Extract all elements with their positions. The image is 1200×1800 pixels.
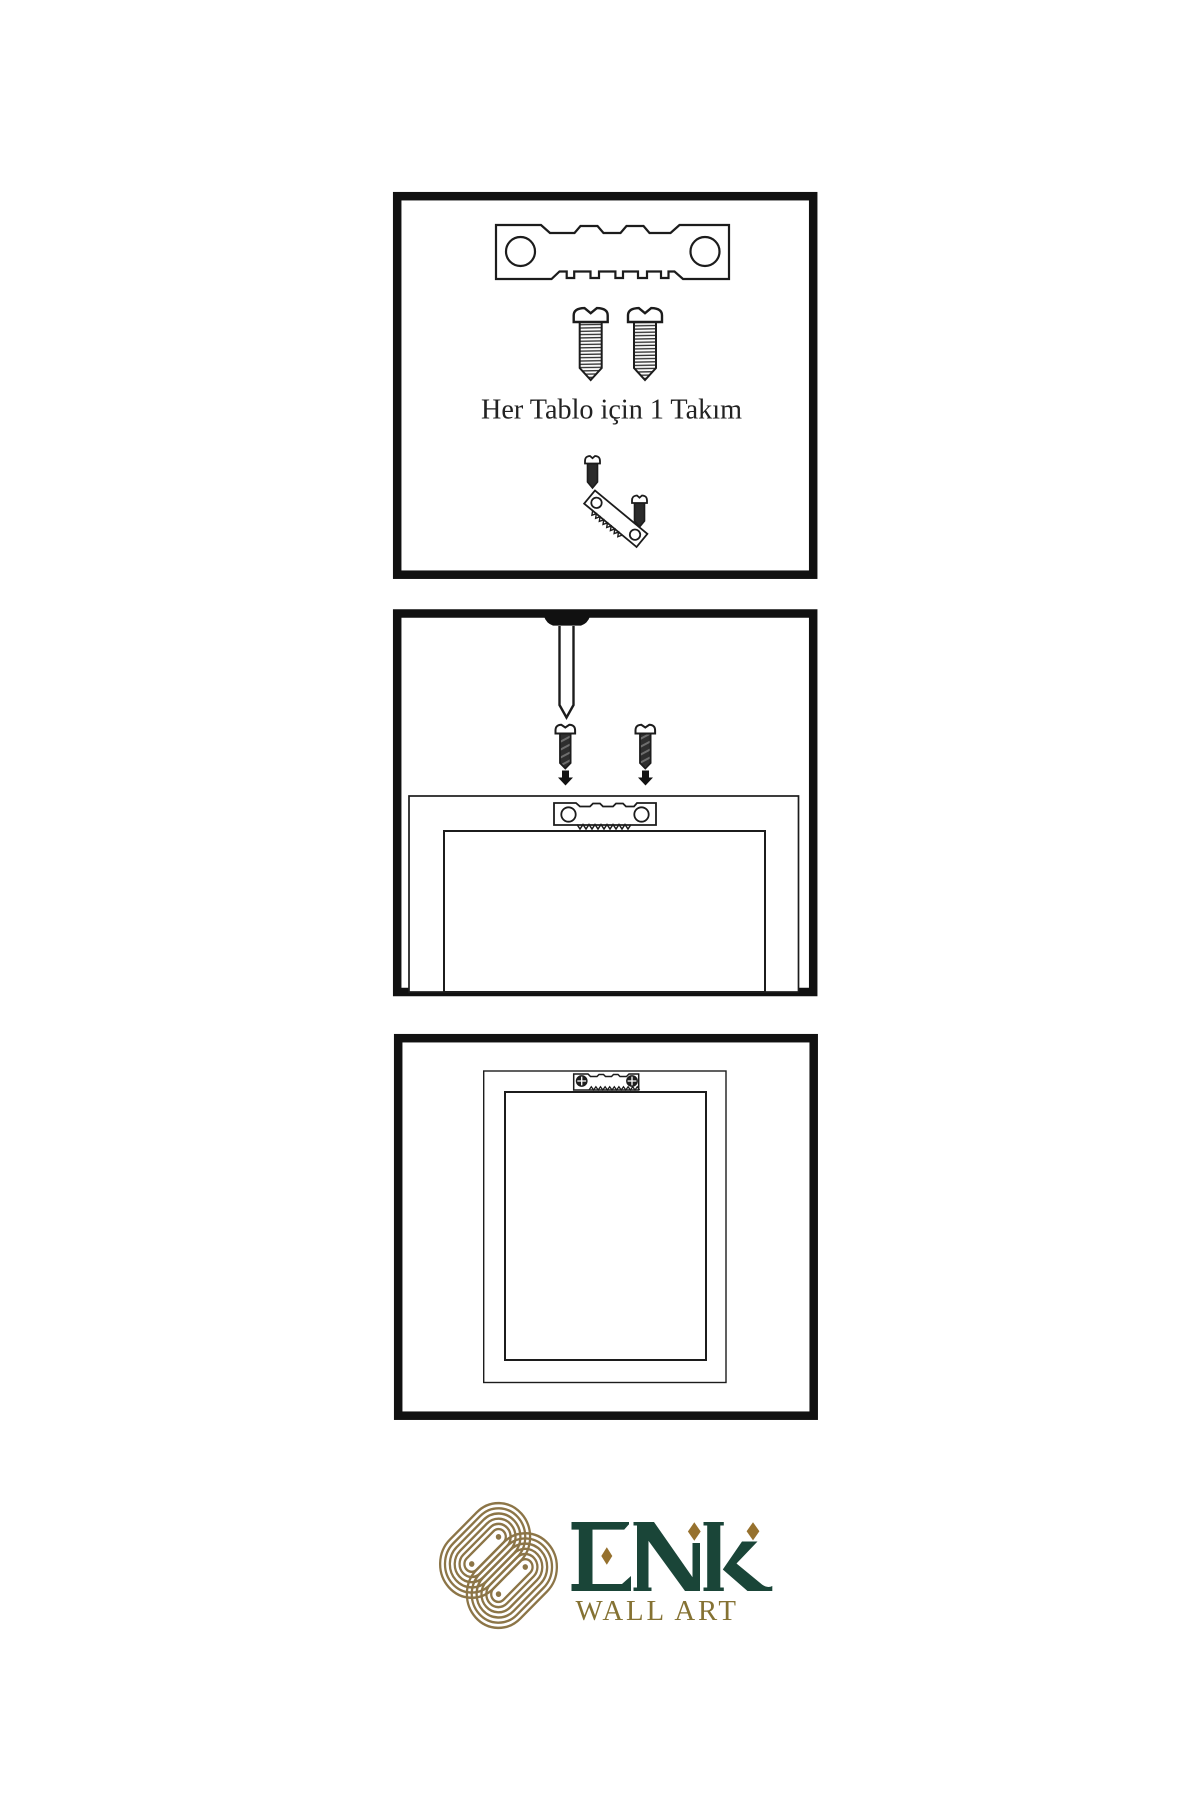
svg-text:WALL ART: WALL ART bbox=[576, 1595, 737, 1627]
svg-text:Her Tablo için 1 Takım: Her Tablo için 1 Takım bbox=[481, 394, 742, 426]
